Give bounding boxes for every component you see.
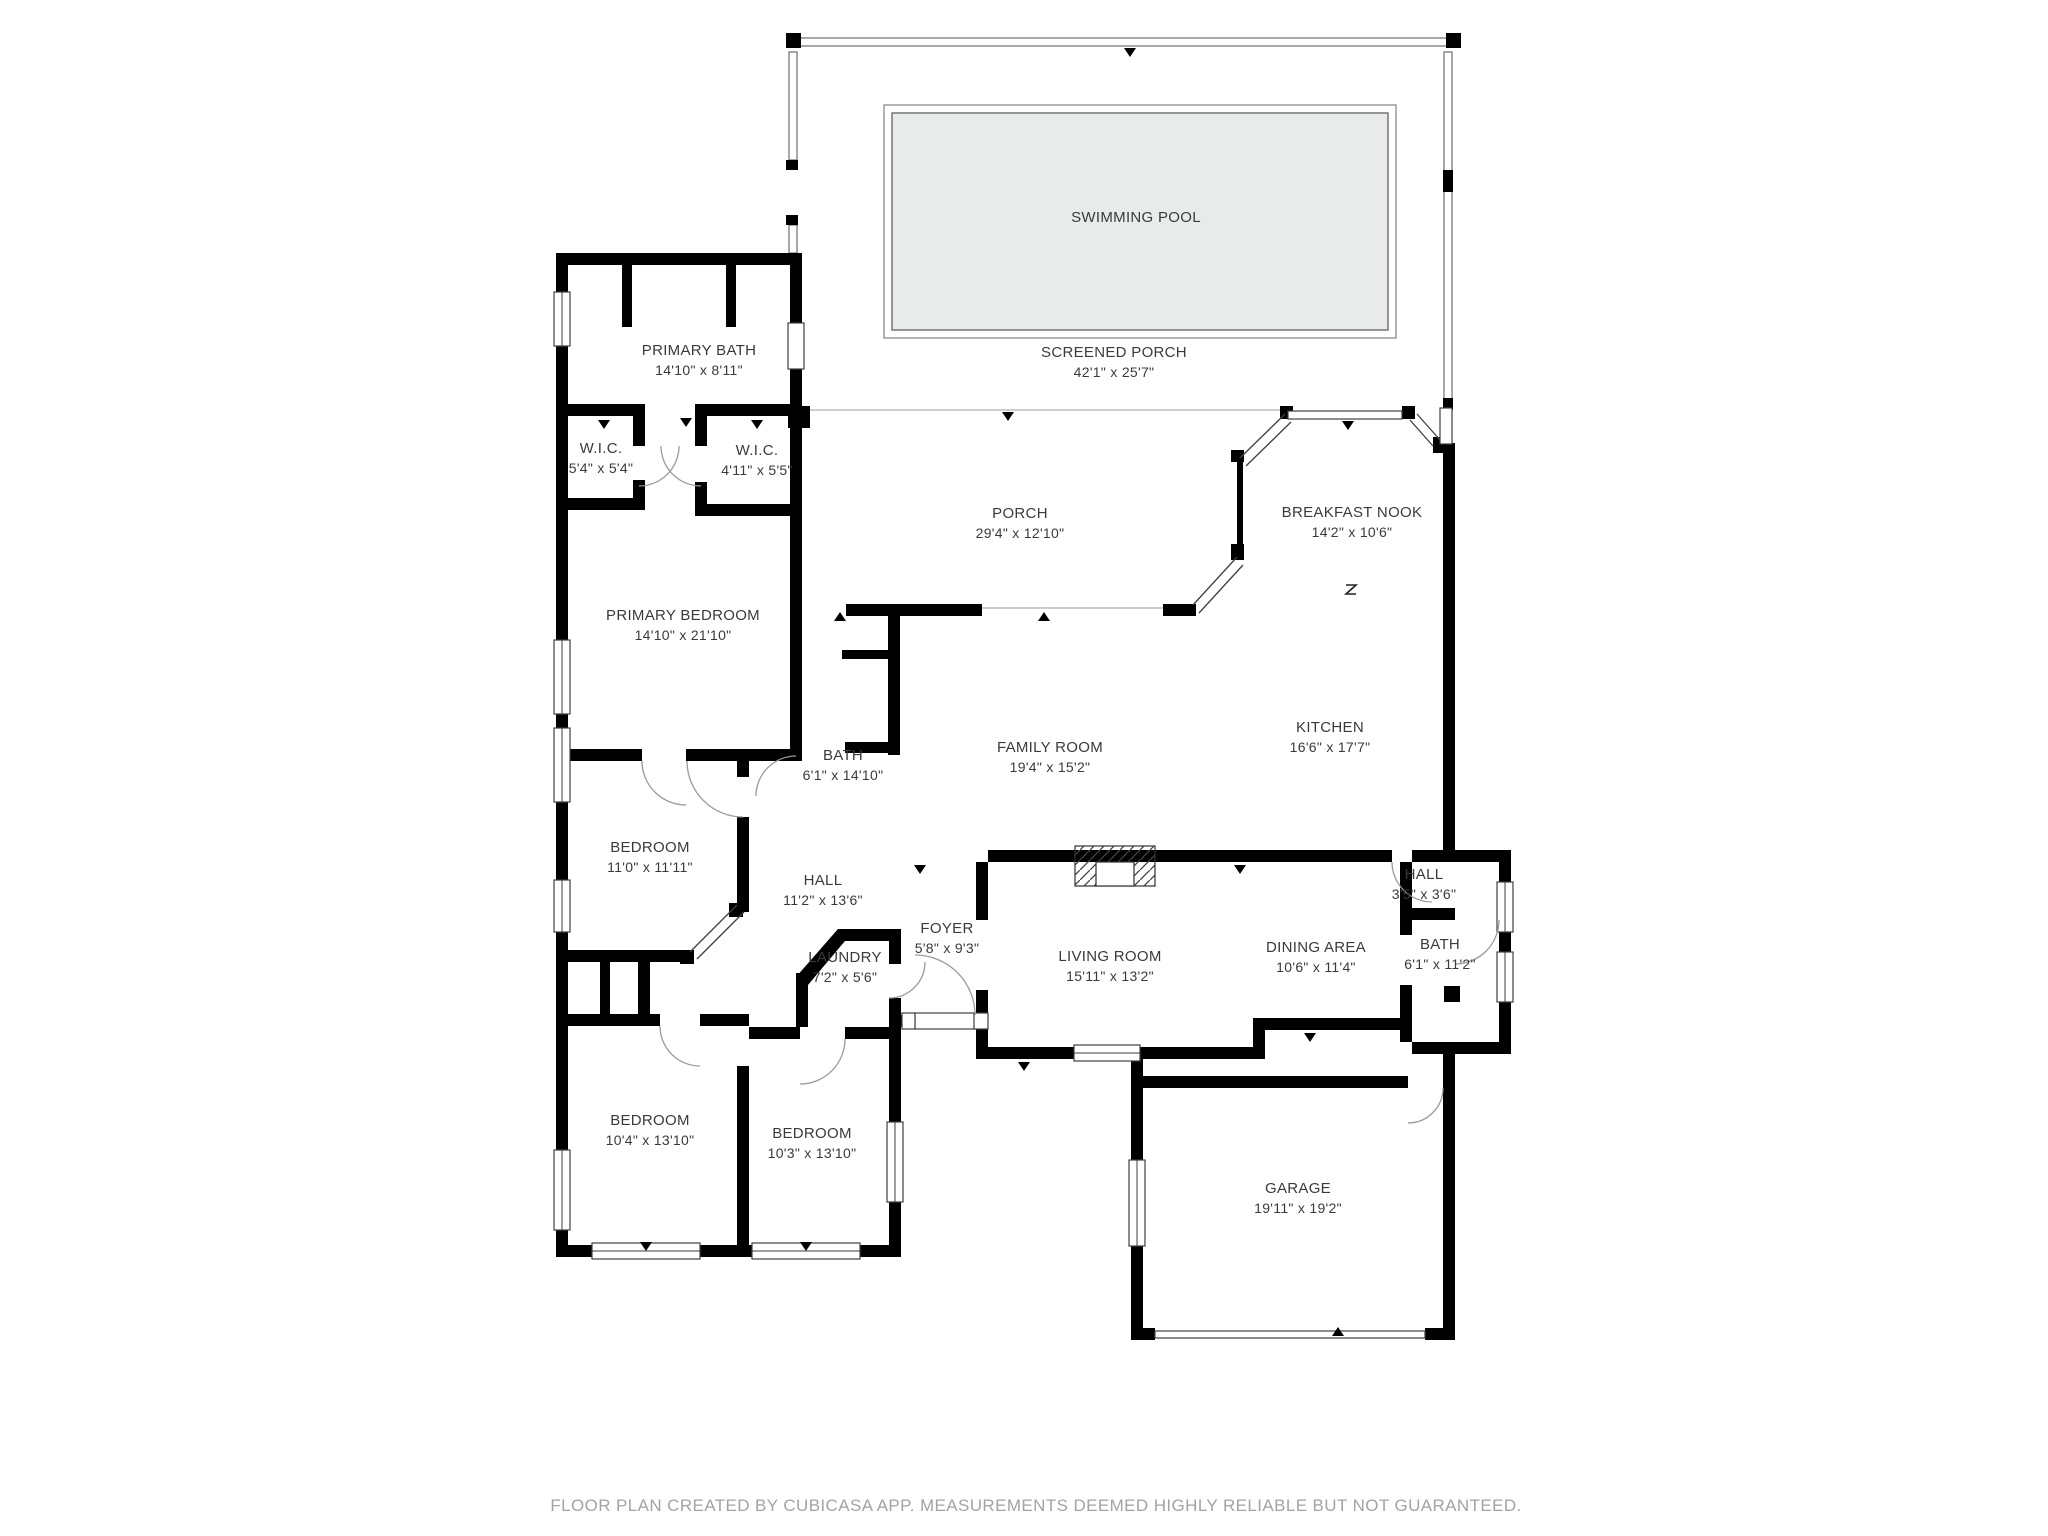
room-name: BEDROOM: [772, 1125, 852, 1142]
room-name: BEDROOM: [610, 1112, 690, 1129]
room-name: PORCH: [992, 505, 1048, 522]
room-label-wic-left: W.I.C.5'4" x 5'4": [569, 439, 634, 477]
room-dims: 5'8" x 9'3": [915, 939, 980, 957]
room-dims: 10'6" x 11'4": [1266, 958, 1366, 976]
room-label-bedroom-west: BEDROOM11'0" x 11'11": [607, 838, 693, 876]
room-label-dining-area: DINING AREA10'6" x 11'4": [1266, 938, 1366, 976]
footer-attribution: FLOOR PLAN CREATED BY CUBICASA APP. MEAS…: [550, 1496, 1521, 1516]
room-dims: 11'2" x 13'6": [783, 891, 863, 909]
room-label-porch: PORCH29'4" x 12'10": [976, 504, 1065, 542]
room-label-bedroom-south-left: BEDROOM10'4" x 13'10": [606, 1111, 695, 1149]
room-dims: 6'1" x 11'2": [1404, 955, 1476, 973]
windows: [554, 292, 1513, 1338]
room-dims: 42'1" x 25'7": [1041, 363, 1187, 381]
fixture-mark: [1346, 585, 1356, 594]
room-dims: 11'0" x 11'11": [607, 858, 693, 876]
room-dims: 5'4" x 5'4": [569, 459, 634, 477]
room-name: LAUNDRY: [808, 949, 882, 966]
room-dims: 19'4" x 15'2": [997, 758, 1103, 776]
room-dims: 7'2" x 5'6": [808, 968, 882, 986]
room-label-bath-right: BATH6'1" x 11'2": [1404, 935, 1476, 973]
room-name: W.I.C.: [736, 442, 779, 459]
room-label-laundry: LAUNDRY7'2" x 5'6": [808, 948, 882, 986]
room-name: PRIMARY BATH: [642, 342, 756, 359]
room-name: GARAGE: [1265, 1180, 1331, 1197]
fireplace: [1075, 846, 1155, 886]
room-name: BATH: [823, 747, 863, 764]
room-dims: 3'5" x 3'6": [1392, 885, 1457, 903]
room-label-breakfast-nook: BREAKFAST NOOK14'2" x 10'6": [1282, 503, 1423, 541]
room-label-foyer: FOYER5'8" x 9'3": [915, 919, 980, 957]
room-label-garage: GARAGE19'11" x 19'2": [1254, 1179, 1342, 1217]
room-dims: 29'4" x 12'10": [976, 524, 1065, 542]
room-label-living-room: LIVING ROOM15'11" x 13'2": [1058, 947, 1161, 985]
room-name: BEDROOM: [610, 839, 690, 856]
room-dims: 14'10" x 8'11": [642, 361, 756, 379]
room-dims: 10'3" x 13'10": [768, 1144, 857, 1162]
room-dims: 15'11" x 13'2": [1058, 967, 1161, 985]
room-name: SCREENED PORCH: [1041, 344, 1187, 361]
bay-window-band: [1288, 411, 1402, 419]
room-name: FAMILY ROOM: [997, 739, 1103, 756]
room-label-hall-main: HALL11'2" x 13'6": [783, 871, 863, 909]
room-name: W.I.C.: [580, 440, 623, 457]
room-name: LIVING ROOM: [1058, 948, 1161, 965]
room-dims: 6'1" x 14'10": [803, 766, 884, 784]
room-name: SWIMMING POOL: [1071, 209, 1201, 226]
room-dims: 14'10" x 21'10": [606, 626, 760, 644]
room-name: BATH: [1420, 936, 1460, 953]
room-label-swimming-pool: SWIMMING POOL: [1071, 208, 1201, 228]
room-label-screened-porch: SCREENED PORCH42'1" x 25'7": [1041, 343, 1187, 381]
room-dims: 14'2" x 10'6": [1282, 523, 1423, 541]
room-dims: 4'11" x 5'5": [721, 461, 793, 479]
room-dims: 10'4" x 13'10": [606, 1131, 695, 1149]
room-label-bedroom-south-right: BEDROOM10'3" x 13'10": [768, 1124, 857, 1162]
room-label-primary-bedroom: PRIMARY BEDROOM14'10" x 21'10": [606, 606, 760, 644]
room-name: KITCHEN: [1296, 719, 1364, 736]
room-label-kitchen: KITCHEN16'6" x 17'7": [1290, 718, 1371, 756]
floor-plan-canvas: SWIMMING POOL SCREENED PORCH42'1" x 25'7…: [0, 0, 2048, 1536]
room-name: HALL: [1405, 866, 1444, 883]
room-label-primary-bath: PRIMARY BATH14'10" x 8'11": [642, 341, 756, 379]
room-dims: 19'11" x 19'2": [1254, 1199, 1342, 1217]
room-name: DINING AREA: [1266, 939, 1366, 956]
room-label-bath-primary-hall: BATH6'1" x 14'10": [803, 746, 884, 784]
room-name: FOYER: [920, 920, 973, 937]
room-name: HALL: [804, 872, 843, 889]
room-name: PRIMARY BEDROOM: [606, 607, 760, 624]
room-label-wic-right: W.I.C.4'11" x 5'5": [721, 441, 793, 479]
room-name: BREAKFAST NOOK: [1282, 504, 1423, 521]
room-label-family-room: FAMILY ROOM19'4" x 15'2": [997, 738, 1103, 776]
room-dims: 16'6" x 17'7": [1290, 738, 1371, 756]
room-label-hall-small: HALL3'5" x 3'6": [1392, 865, 1457, 903]
